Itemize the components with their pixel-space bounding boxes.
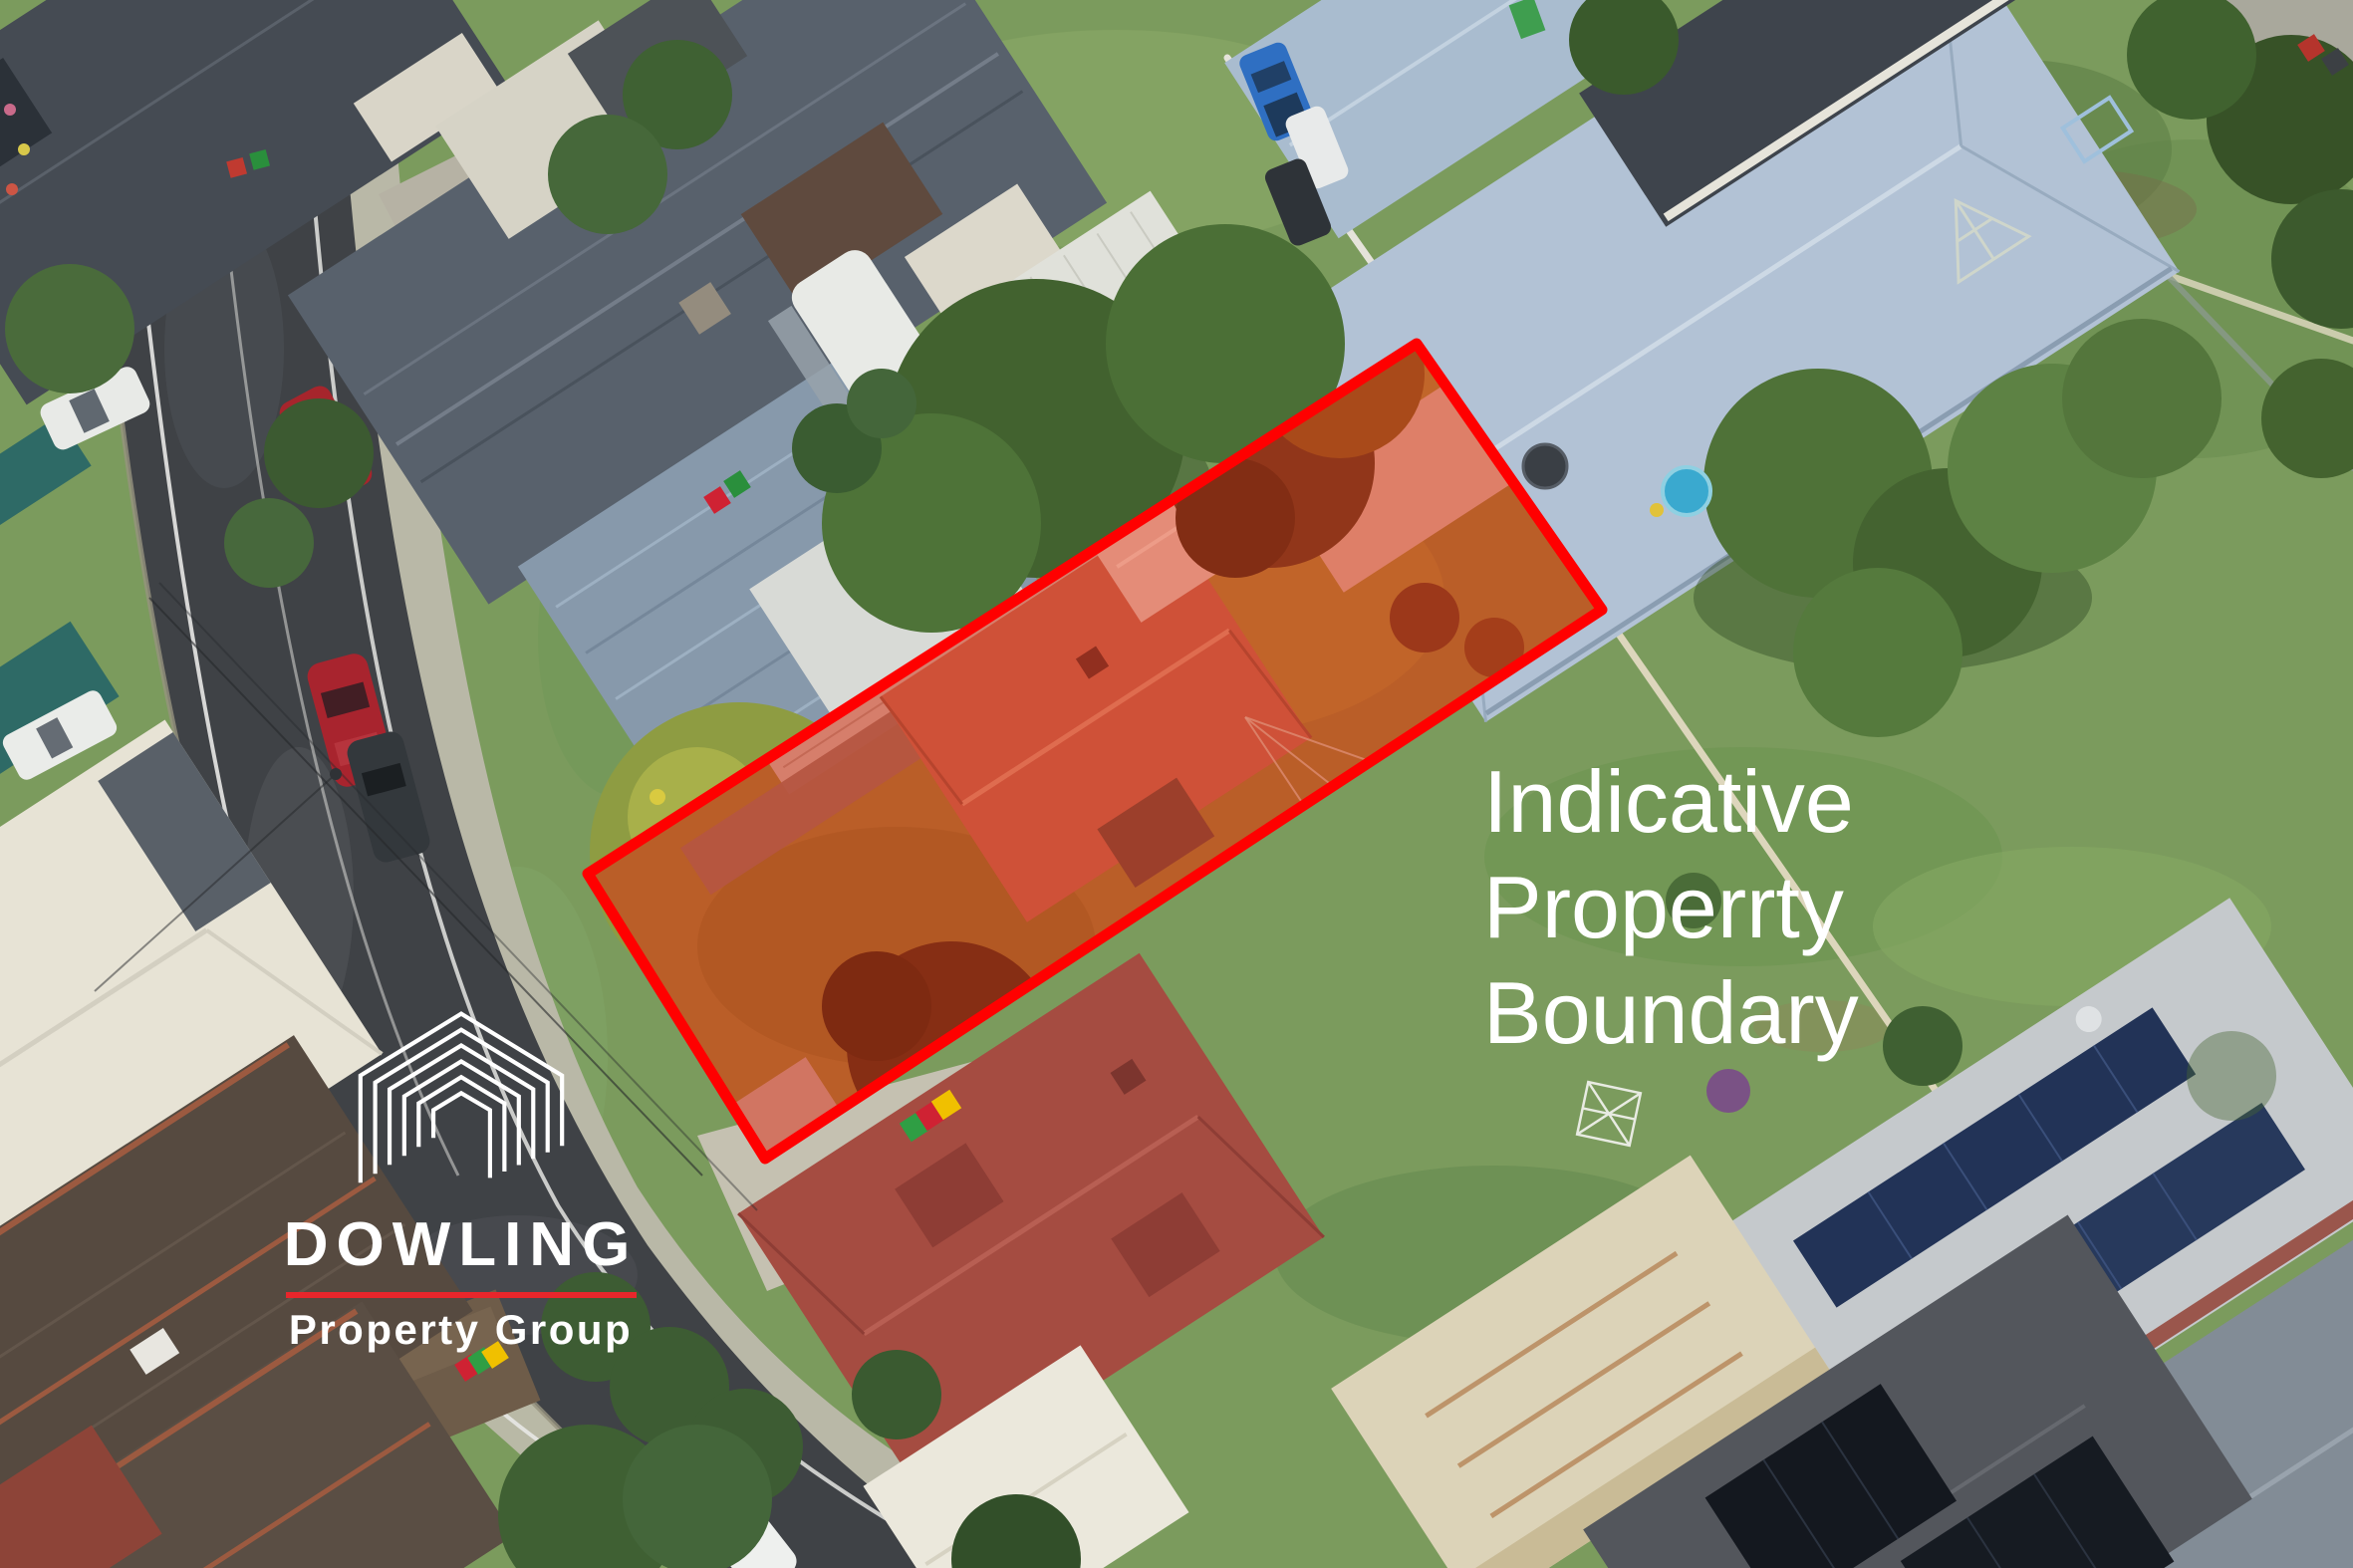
yellow-toy	[1650, 503, 1664, 517]
boundary-annotation: Indicative Properrty Boundary	[1483, 749, 1859, 1066]
dowling-logo: DOWLING Property Group	[269, 992, 653, 1351]
logo-brand: DOWLING	[269, 1214, 653, 1276]
power-pole	[330, 768, 342, 780]
kids-pool	[1663, 467, 1710, 515]
nested-houses-icon	[356, 1000, 567, 1192]
annotation-line-2: Properrty	[1483, 855, 1859, 960]
annotation-line-3: Boundary	[1483, 960, 1859, 1066]
logo-divider	[286, 1292, 637, 1298]
annotation-line-1: Indicative	[1483, 749, 1859, 855]
trampoline	[1523, 444, 1567, 488]
logo-tagline: Property Group	[269, 1309, 653, 1351]
aerial-photo: Indicative Properrty Boundary DOWLING Pr…	[0, 0, 2353, 1568]
